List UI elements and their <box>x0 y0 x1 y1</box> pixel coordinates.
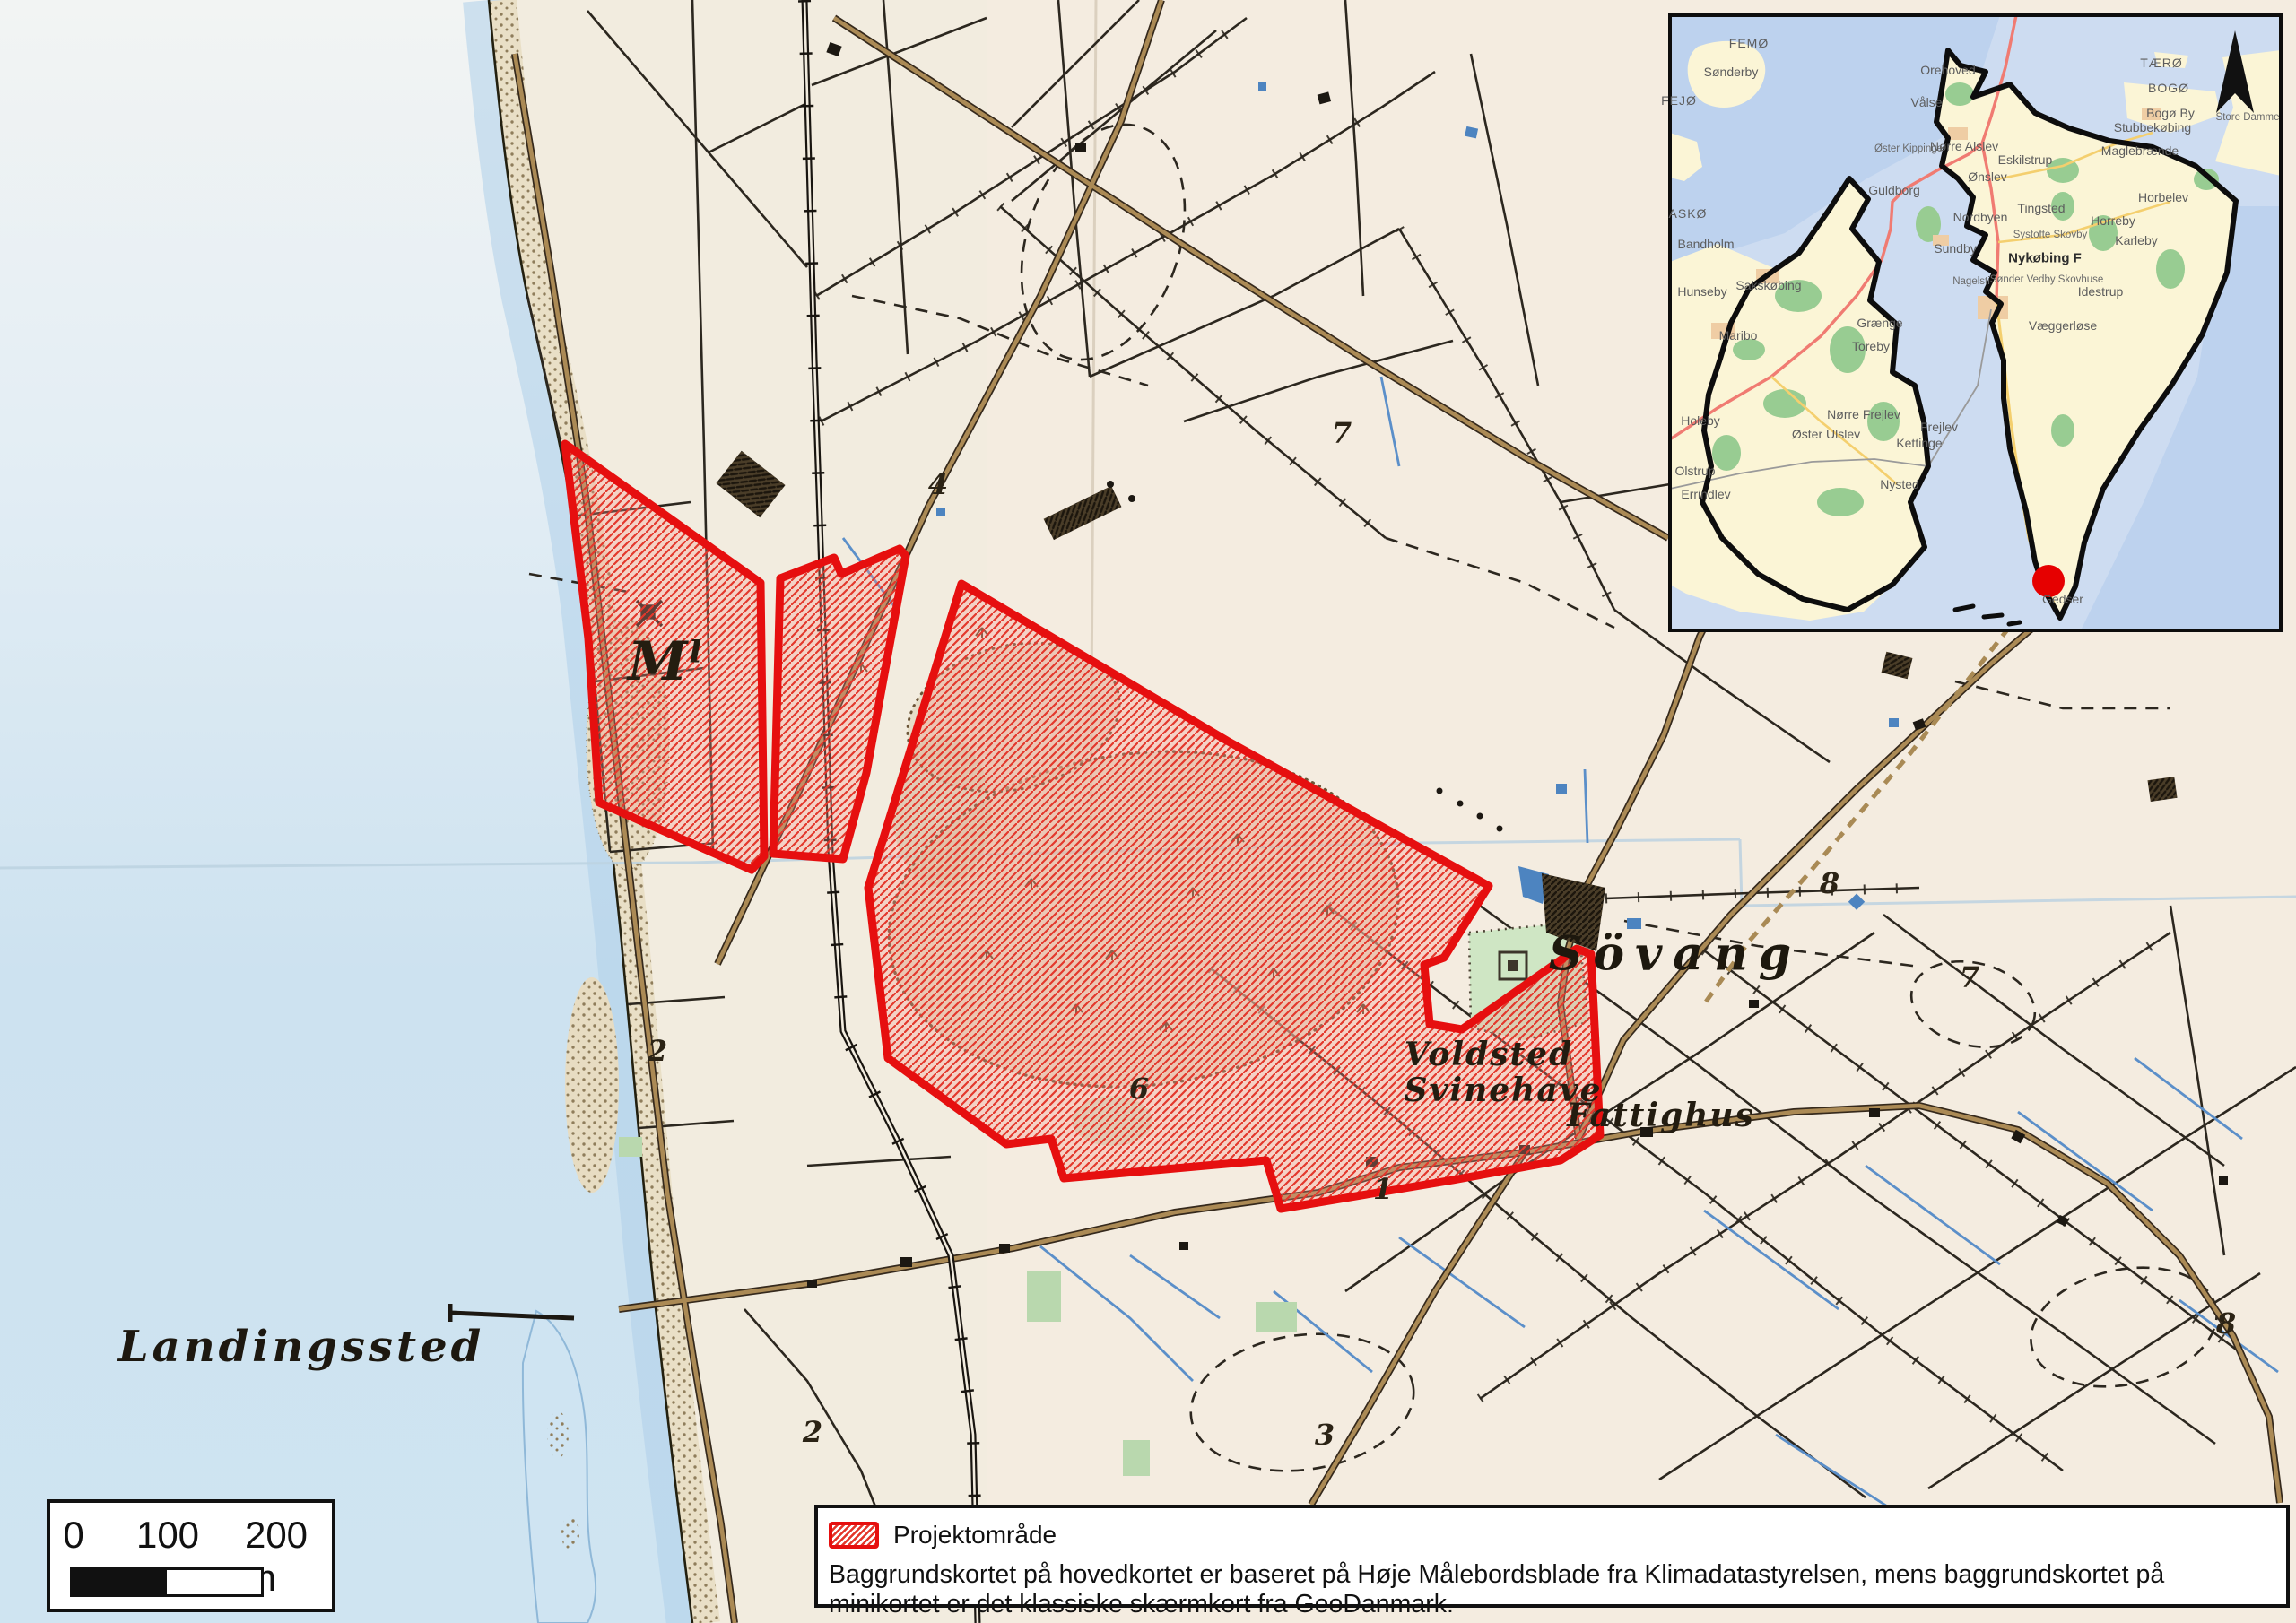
scale-tick-100: 100 <box>136 1514 199 1557</box>
legend-label: Projektområde <box>893 1521 1057 1549</box>
legend: Projektområde Baggrundskortet på hovedko… <box>814 1505 2290 1608</box>
project-area-swatch <box>829 1522 879 1549</box>
scale-bar-graphic <box>70 1567 264 1597</box>
main-map <box>0 0 2296 1623</box>
scale-bar: 0 100 200 m <box>47 1499 335 1612</box>
attribution-text: Baggrundskortet på hovedkortet er basere… <box>829 1560 2277 1619</box>
location-marker <box>2032 565 2065 597</box>
scale-tick-0: 0 <box>63 1514 83 1557</box>
map-figure: LandingsstedMˡSövangVoldstedSvinehaveFat… <box>0 0 2296 1623</box>
